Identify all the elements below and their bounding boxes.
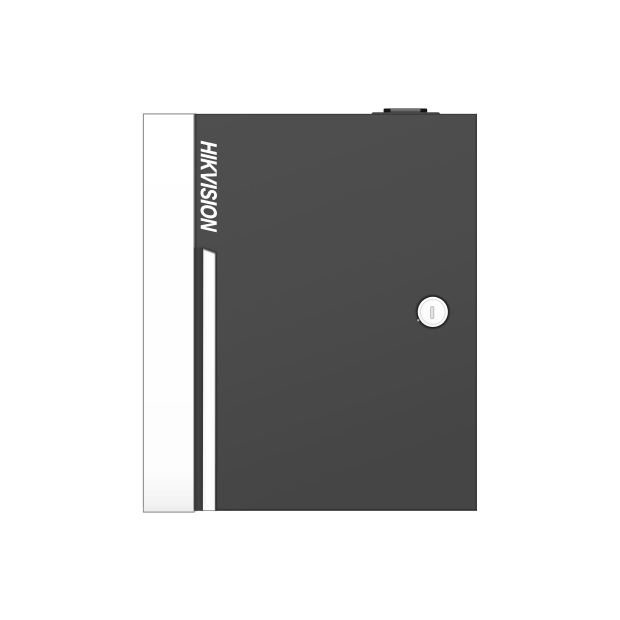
svg-text:HIKVISION: HIKVISION — [196, 140, 221, 232]
